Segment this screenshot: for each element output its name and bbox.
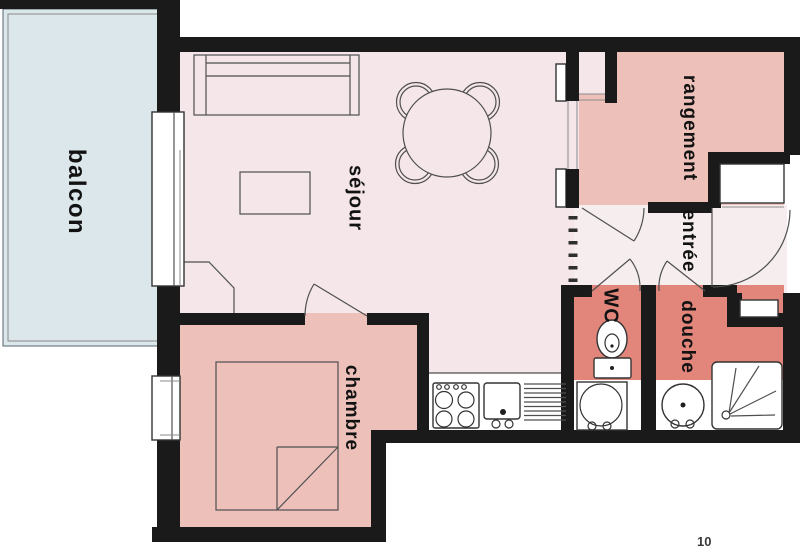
wall xyxy=(371,430,800,443)
room-floors xyxy=(3,9,787,528)
room-label-storage: rangement xyxy=(678,75,700,181)
room-label-wc: WC xyxy=(599,288,622,323)
wall xyxy=(605,52,617,103)
room-label-bedroom: chambre xyxy=(340,365,362,451)
room-label-living: séjour xyxy=(344,165,367,231)
wall xyxy=(784,37,800,155)
shower-tray-icon xyxy=(712,362,782,429)
bedroom-furniture xyxy=(216,362,338,510)
wall xyxy=(641,285,656,431)
bedroom-window xyxy=(152,376,180,440)
balcony-sliding-door xyxy=(152,112,184,286)
living-room-floor-lower xyxy=(180,287,561,314)
sofa-icon xyxy=(194,55,359,115)
round-table-icon xyxy=(403,89,491,177)
wall xyxy=(176,313,305,325)
coffee-table-icon xyxy=(240,172,310,214)
entry-alcove xyxy=(720,164,784,207)
living-room-floor-kitchen-side xyxy=(429,313,561,374)
wall xyxy=(417,313,429,443)
partition-panel xyxy=(556,64,566,101)
wall xyxy=(783,293,800,443)
room-label-balcony: balcon xyxy=(62,149,90,235)
washer-icon xyxy=(577,382,627,430)
wall xyxy=(157,284,180,377)
shower-niche xyxy=(740,300,778,317)
wall xyxy=(176,37,800,52)
wall xyxy=(574,285,592,297)
dining-table-icon xyxy=(396,83,500,184)
room-label-shower: douche xyxy=(676,300,698,374)
wall xyxy=(566,52,579,101)
wall xyxy=(708,152,790,164)
room-label-entry: entrée xyxy=(677,209,699,272)
stove-icon xyxy=(433,383,479,428)
partition-panel xyxy=(556,169,566,207)
storage-closet-floor xyxy=(579,52,605,94)
floor-plan-page: { "title": "apartment-floor-plan", "room… xyxy=(0,0,800,542)
wall xyxy=(152,527,386,542)
wall xyxy=(566,169,579,208)
wall xyxy=(157,0,180,112)
wall xyxy=(0,0,160,9)
wall xyxy=(561,285,574,431)
wall xyxy=(371,430,386,529)
wall xyxy=(157,439,180,532)
bed-icon xyxy=(216,362,338,510)
